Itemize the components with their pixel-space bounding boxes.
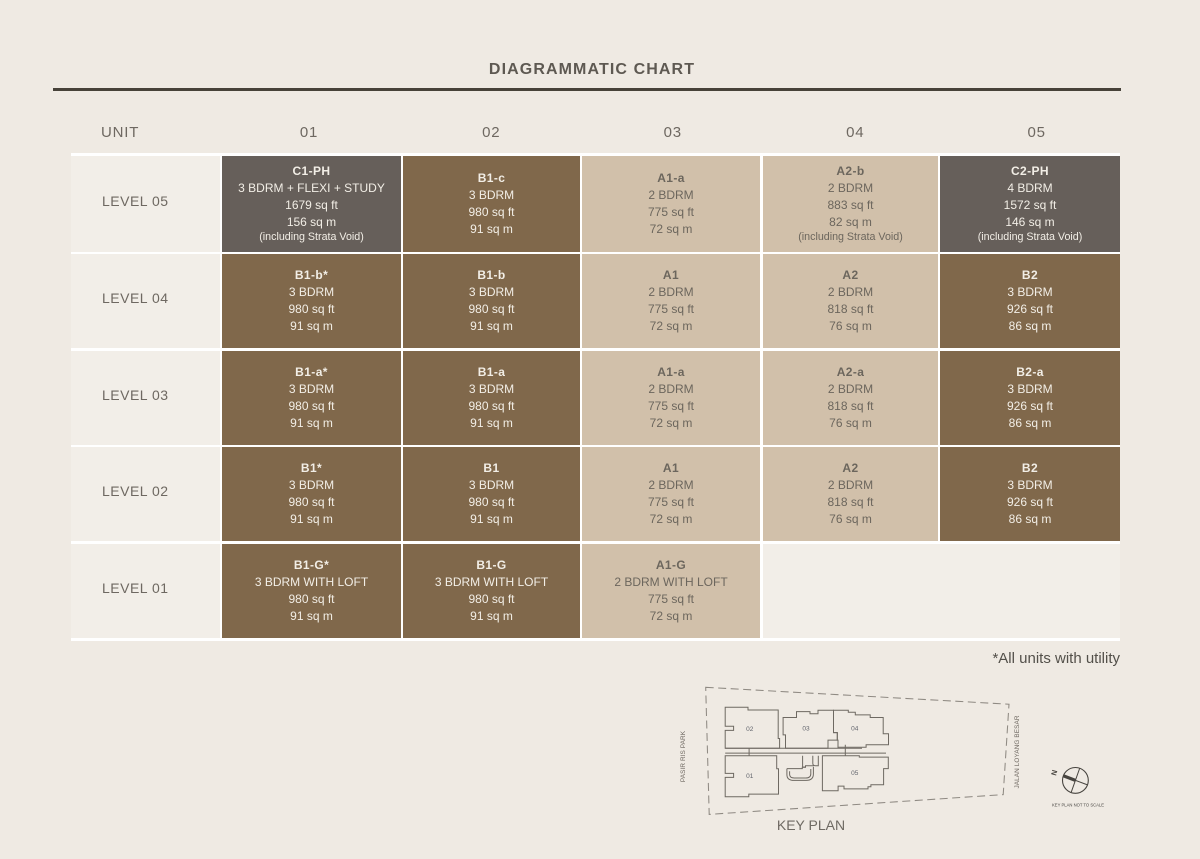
svg-text:KEY PLAN NOT TO SCALE: KEY PLAN NOT TO SCALE	[1052, 803, 1104, 808]
svg-text:05: 05	[851, 770, 859, 777]
svg-text:N: N	[1049, 769, 1059, 777]
svg-text:01: 01	[746, 773, 754, 780]
svg-text:KEY PLAN: KEY PLAN	[777, 817, 845, 833]
svg-text:04: 04	[851, 726, 859, 733]
svg-text:JALAN LOYANG BESAR: JALAN LOYANG BESAR	[1014, 715, 1021, 788]
svg-text:03: 03	[802, 726, 810, 733]
svg-text:02: 02	[746, 726, 754, 733]
svg-text:PASIR RIS PARK: PASIR RIS PARK	[680, 730, 687, 782]
